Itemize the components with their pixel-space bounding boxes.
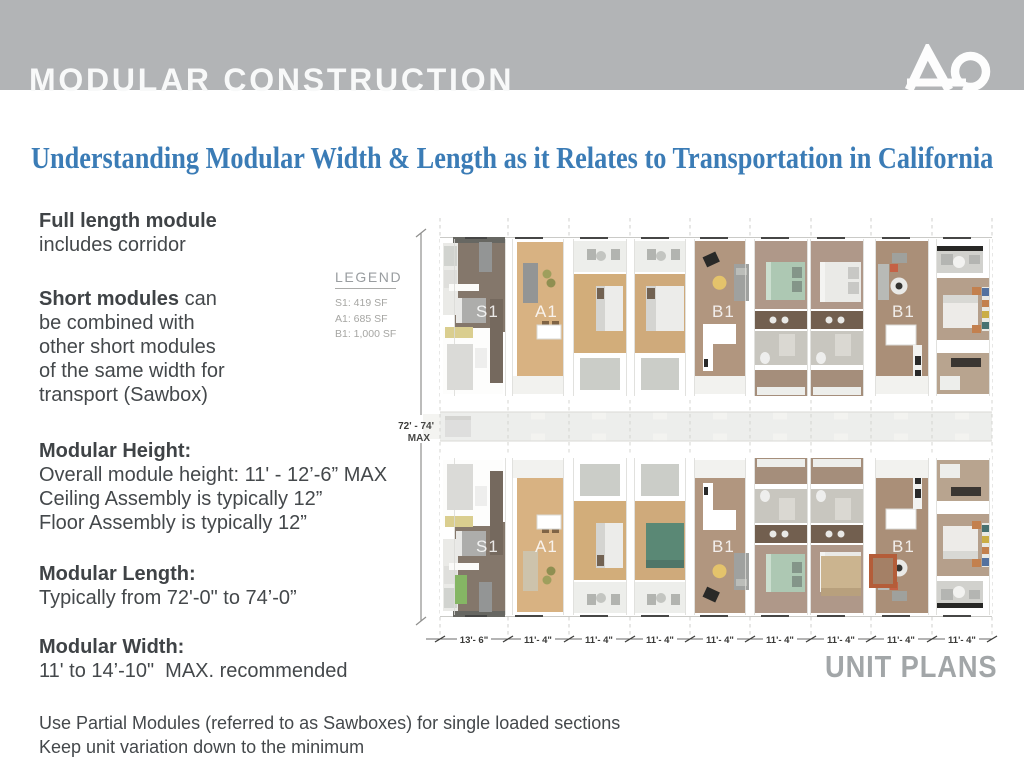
svg-text:11'- 4": 11'- 4"	[887, 635, 915, 646]
svg-text:13'- 6": 13'- 6"	[460, 635, 488, 646]
svg-text:11'- 4": 11'- 4"	[524, 635, 552, 646]
svg-text:11'- 4": 11'- 4"	[766, 635, 794, 646]
svg-text:11'- 4": 11'- 4"	[827, 635, 855, 646]
svg-text:11'- 4": 11'- 4"	[646, 635, 674, 646]
svg-text:11'- 4": 11'- 4"	[948, 635, 976, 646]
svg-text:11'- 4": 11'- 4"	[706, 635, 734, 646]
svg-text:11'- 4": 11'- 4"	[585, 635, 613, 646]
